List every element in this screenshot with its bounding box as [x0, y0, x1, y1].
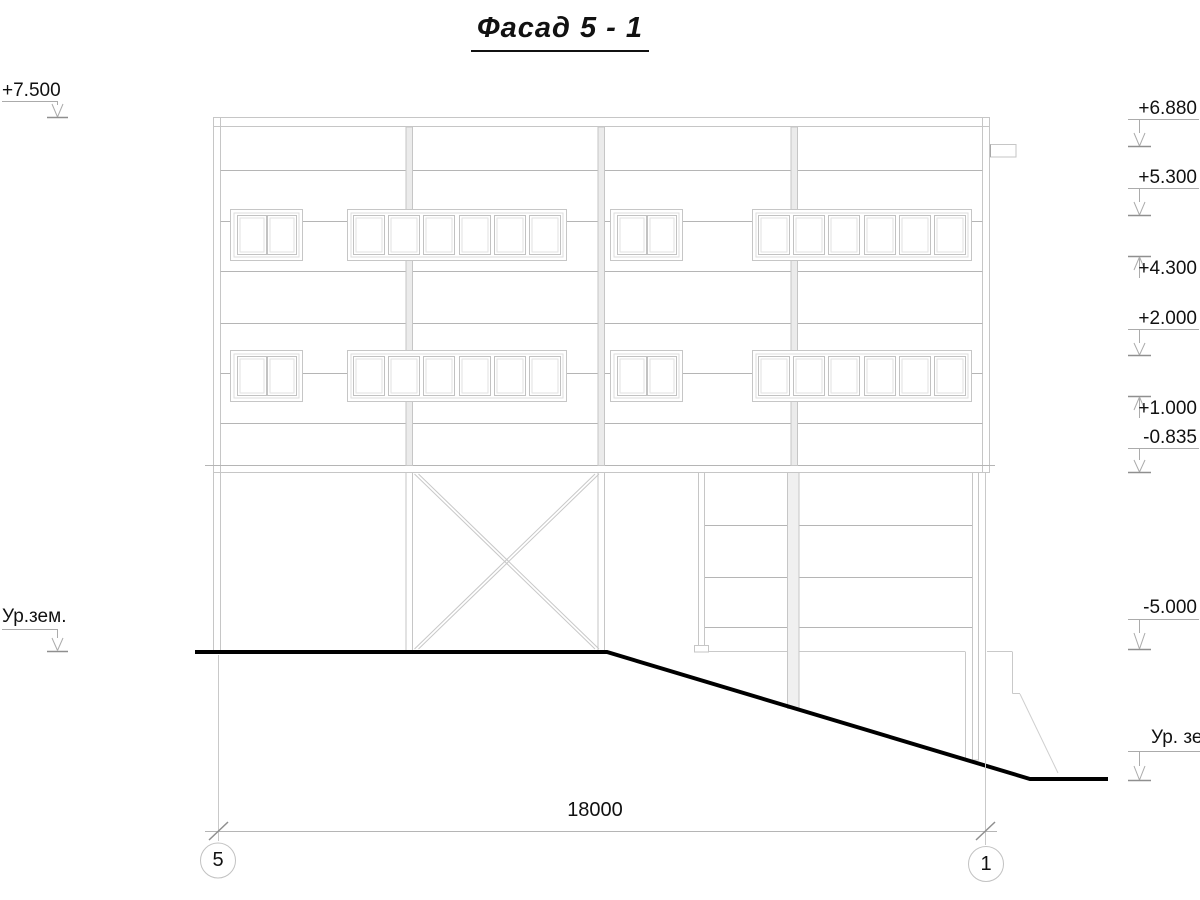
level-label-plus-2000: +2.000: [1138, 308, 1197, 330]
level-label-ground-left: Ур.зем.: [2, 606, 66, 628]
roof-protrusion: [990, 145, 1016, 158]
grid-bubble-1: 1: [966, 853, 1006, 876]
level-label-plus-6880: +6.880: [1138, 98, 1197, 120]
facade-drawing: [0, 0, 1200, 900]
level-label-minus-0835: -0.835: [1143, 427, 1197, 449]
dimension-text: 18000: [530, 799, 660, 822]
level-label-plus-7500: +7.500: [2, 80, 61, 102]
level-label-plus-1000: +1.000: [1138, 398, 1197, 420]
drawing-canvas: Фасад 5 - 1: [0, 0, 1200, 900]
support-columns: [214, 473, 979, 761]
level-label-minus-5000: -5.000: [1143, 597, 1197, 619]
grid-bubble-5: 5: [198, 849, 238, 872]
x-bracing: [415, 474, 600, 649]
level-label-plus-5300: +5.300: [1138, 167, 1197, 189]
foundation-lines: [966, 652, 1059, 774]
level-label-ground-right: Ур. зе: [1151, 727, 1200, 749]
level-label-plus-4300: +4.300: [1138, 258, 1197, 280]
stair-landing-lines: [705, 526, 972, 652]
ground-line: [195, 652, 1108, 779]
